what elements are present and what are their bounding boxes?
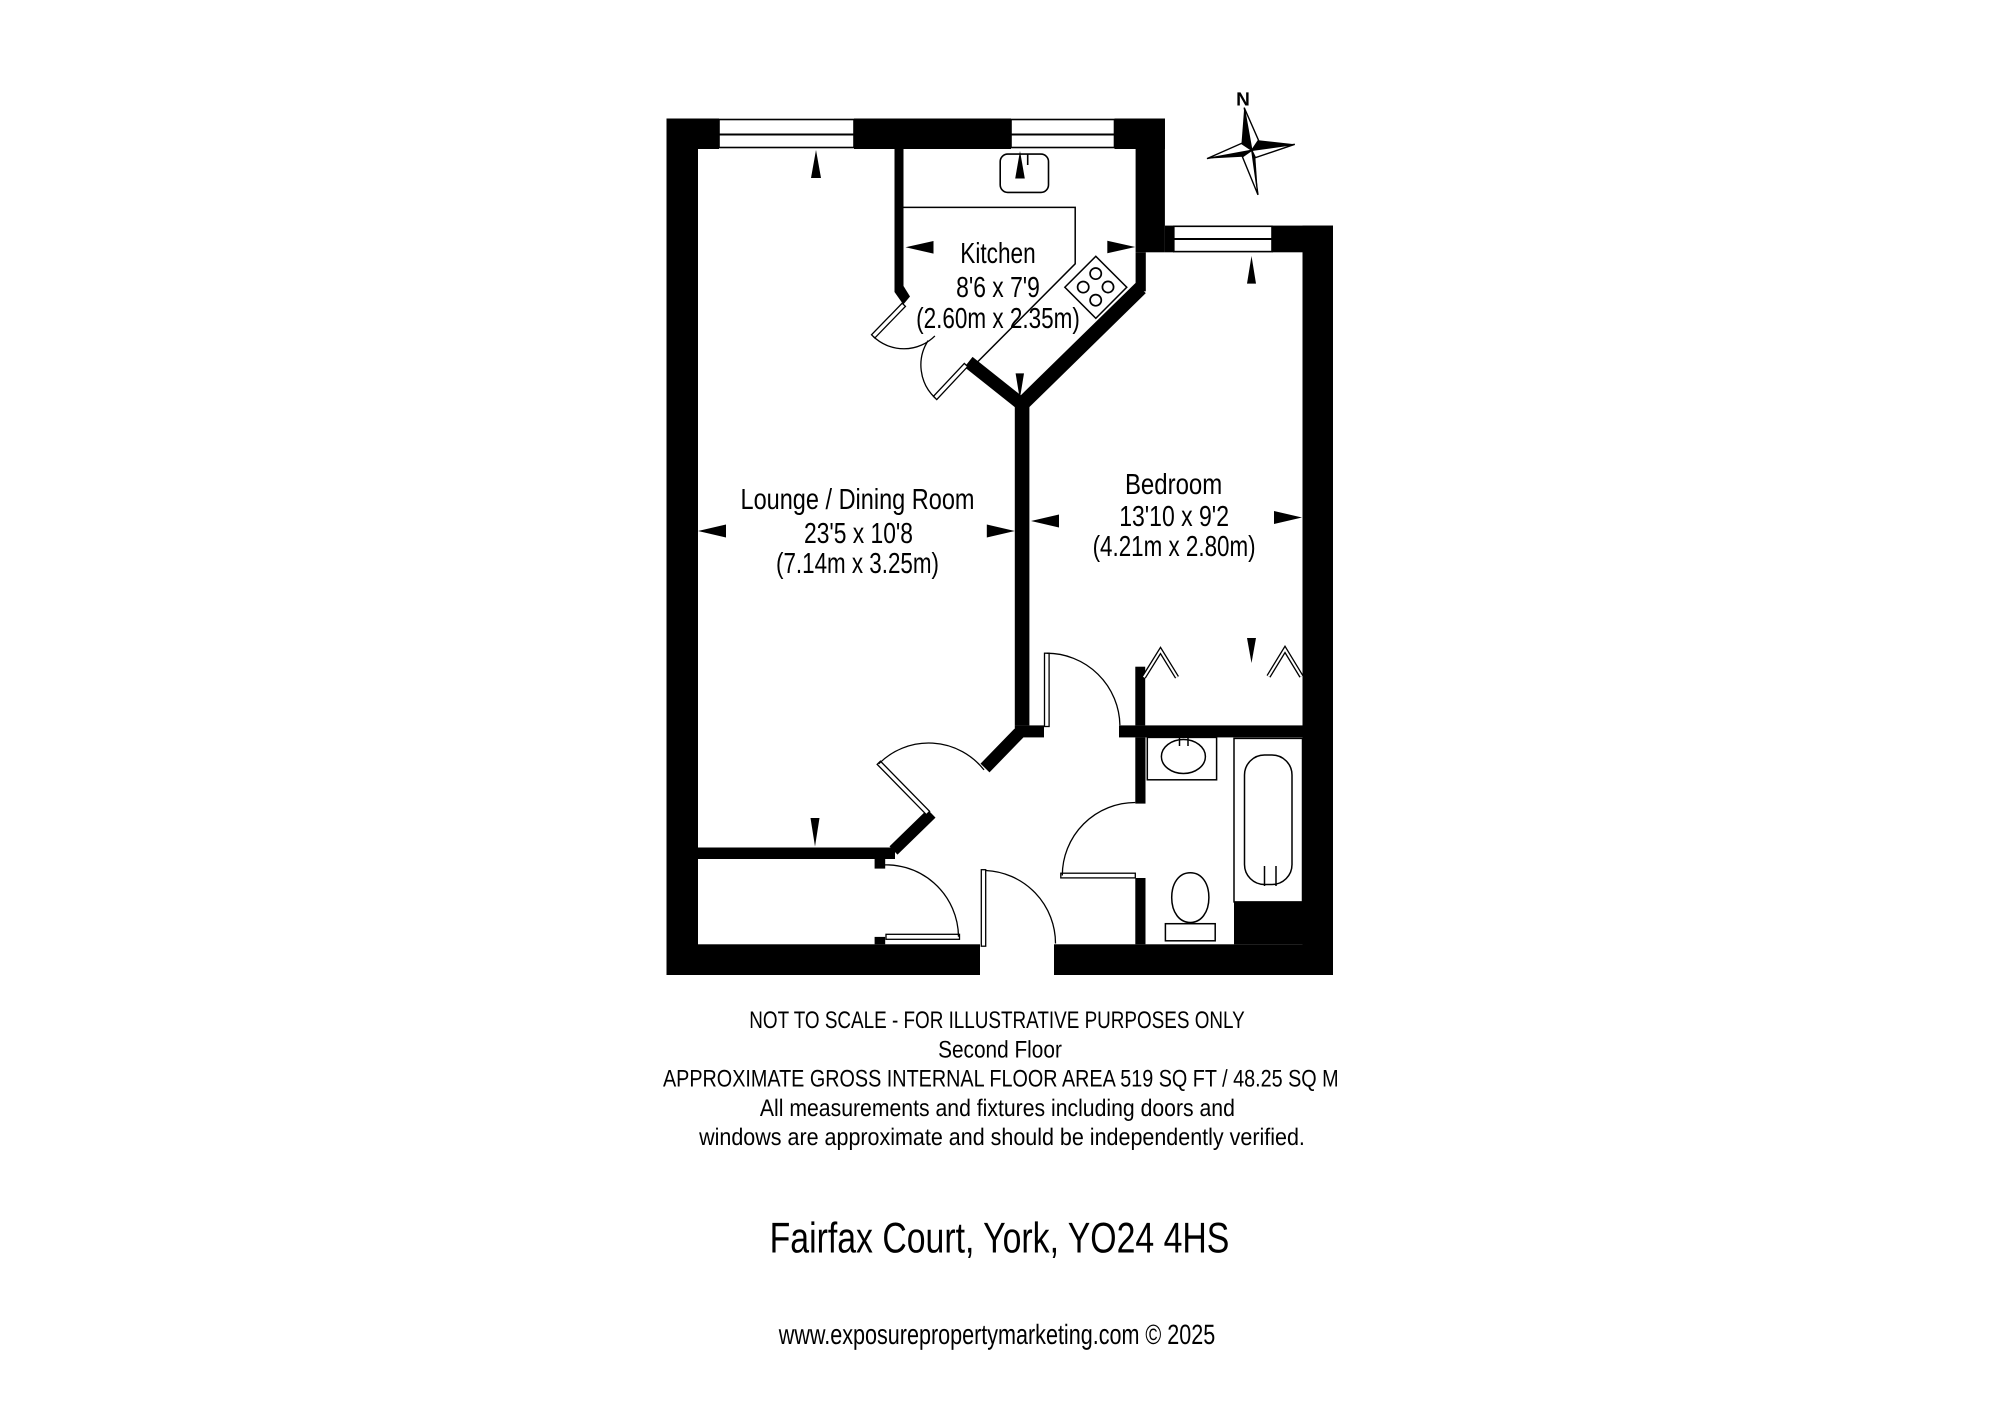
svg-text:Lounge / Dining Room: Lounge / Dining Room (741, 484, 975, 516)
svg-text:N: N (1236, 90, 1250, 111)
svg-text:APPROXIMATE GROSS INTERNAL FLO: APPROXIMATE GROSS INTERNAL FLOOR AREA 51… (663, 1066, 1339, 1093)
svg-text:All measurements and fixtures: All measurements and fixtures including … (760, 1095, 1235, 1122)
svg-text:(4.21m x 2.80m): (4.21m x 2.80m) (1093, 531, 1256, 563)
svg-text:NOT TO SCALE - FOR ILLUSTRATIV: NOT TO SCALE - FOR ILLUSTRATIVE PURPOSES… (749, 1007, 1244, 1034)
svg-text:Fairfax Court, York, YO24 4HS: Fairfax Court, York, YO24 4HS (770, 1215, 1230, 1263)
svg-text:Bedroom: Bedroom (1125, 469, 1222, 501)
svg-text:8'6 x 7'9: 8'6 x 7'9 (956, 272, 1040, 304)
svg-text:windows are approximate and sh: windows are approximate and should be in… (698, 1124, 1305, 1151)
svg-text:www.exposurepropertymarketing.: www.exposurepropertymarketing.com © 2025 (778, 1319, 1215, 1350)
svg-text:13'10 x 9'2: 13'10 x 9'2 (1119, 501, 1229, 533)
svg-text:23'5 x 10'8: 23'5 x 10'8 (804, 518, 913, 550)
svg-text:Second Floor: Second Floor (938, 1036, 1062, 1063)
svg-text:Kitchen: Kitchen (960, 238, 1035, 270)
svg-text:(2.60m x 2.35m): (2.60m x 2.35m) (916, 303, 1080, 335)
svg-text:(7.14m x 3.25m): (7.14m x 3.25m) (776, 548, 939, 580)
